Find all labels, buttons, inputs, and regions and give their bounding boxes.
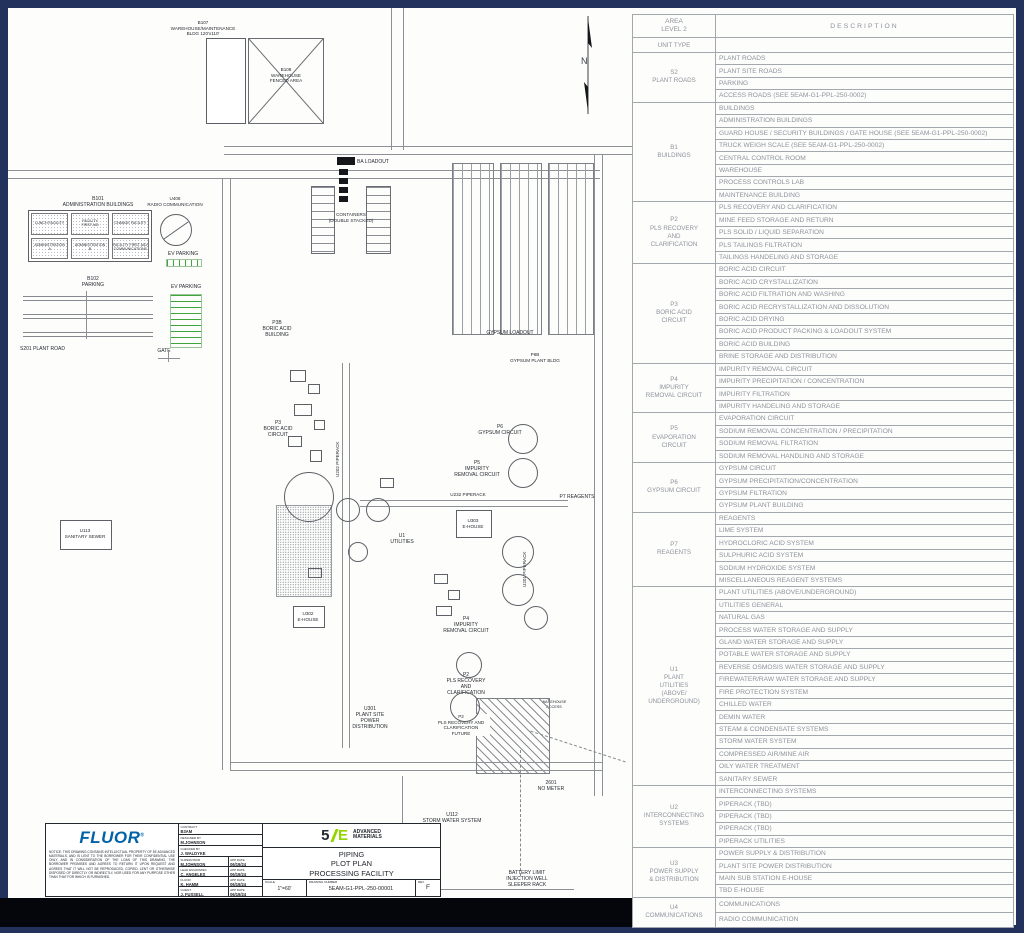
title-block-main: 5 E ADVANCED MATERIALS PIPING PLOT PLAN … (263, 824, 440, 896)
u303-label: U303 E-HOUSE (459, 518, 487, 529)
legend-row: B1 BUILDINGSBUILDINGS (633, 102, 1014, 114)
description-cell: BORIC ACID FILTRATION AND WASHING (716, 289, 1014, 301)
drawing-number-cell: DRAWING NUMBER 5EAM-G1-PPL-250-00001 (307, 880, 416, 896)
legend-row: P6 GYPSUM CIRCUITGYPSUM CIRCUIT (633, 462, 1014, 474)
b108-label: B108 WAREHOUSE FENCED AREA (257, 67, 315, 84)
description-cell: SODIUM HYDROXIDE SYSTEM (716, 562, 1014, 574)
title-block: FLUOR® NOTICE: THIS DRAWING CONTAINS INT… (45, 823, 441, 897)
logo-e: E (338, 827, 348, 844)
road-line (222, 178, 223, 770)
unit-type-cell: P7 REAGENTS (633, 512, 716, 587)
road-line (224, 154, 632, 155)
description-cell: SODIUM REMOVAL CONCENTRATION / PRECIPITA… (716, 425, 1014, 437)
u302-e-house: U302 E-HOUSE (293, 606, 325, 628)
clarifier-tank (456, 652, 482, 678)
description-cell: HYDROCLORIC ACID SYSTEM (716, 537, 1014, 549)
description-cell: IMPURITY HANDELING AND STORAGE (716, 400, 1014, 412)
legend-subheader-row: UNIT TYPE (633, 38, 1014, 53)
unit-type-cell: P2 PLS RECOVERY AND CLARIFICATION (633, 202, 716, 264)
description-cell: PIPERACK (TBD) (716, 810, 1014, 822)
description-cell: SODIUM REMOVAL FILTRATION (716, 438, 1014, 450)
description-cell: POWER SUPPLY & DISTRIBUTION (716, 848, 1014, 860)
area-level-header: AREA LEVEL 2 (633, 15, 716, 38)
unit-type-cell: U4 COMMUNICATIONS (633, 897, 716, 927)
u302-label: U302 E-HOUSE (295, 611, 321, 622)
tank (366, 498, 390, 522)
legend-row: U4 COMMUNICATIONSCOMMUNICATIONS (633, 897, 1014, 912)
unit-type-cell: U2 INTERCONNECTING SYSTEMS (633, 785, 716, 847)
legend-row: U1 PLANT UTILITIES (ABOVE/ UNDERGROUND)P… (633, 587, 1014, 599)
description-cell: UTILITIES GENERAL (716, 599, 1014, 611)
u232-piperack-label: U232 PIPERACK (438, 492, 498, 498)
approval-row: SUPERVISORM.JOHNSON APP DATE06/19/24 (179, 857, 262, 867)
equipment-block (436, 606, 452, 616)
description-cell: ADMINISTRATION BUILDINGS (716, 115, 1014, 127)
description-cell: BUILDINGS (716, 102, 1014, 114)
p2-future-area (476, 698, 550, 774)
admin-cell-firstaid: FACILITY FIRST AID (71, 213, 108, 235)
notice-text: NOTICE: THIS DRAWING CONTAINS INTELLECTU… (49, 850, 175, 879)
admin-cell-admin-a: ADMINISTRATION A (31, 238, 68, 260)
title-line-1: PIPING (263, 850, 440, 860)
description-cell: COMMUNICATIONS (716, 897, 1014, 912)
description-cell: GUARD HOUSE / SECURITY BUILDINGS / GATE … (716, 127, 1014, 139)
description-cell: GYPSUM CIRCUIT (716, 462, 1014, 474)
description-cell: TRUCK WEIGH SCALE (SEE 5EAM-G1-PPL-250-0… (716, 139, 1014, 151)
laydown-yard (500, 163, 542, 335)
equipment-block (314, 420, 325, 430)
description-cell: PIPERACK (TBD) (716, 798, 1014, 810)
description-cell: RADIO COMMUNICATION (716, 912, 1014, 927)
equipment-block (434, 574, 448, 584)
title-line-2: PLOT PLAN (263, 859, 440, 869)
description-cell: CENTRAL CONTROL ROOM (716, 152, 1014, 164)
piperack-line (360, 506, 568, 507)
description-cell: IMPURITY FILTRATION (716, 388, 1014, 400)
admin-cell-lunch: LUNCH FACILITY (31, 213, 68, 235)
equipment-block (288, 436, 302, 447)
equipment-block (290, 370, 306, 382)
ev-parking-strip-1 (166, 259, 202, 267)
unit-type-cell: U3 POWER SUPPLY & DISTRIBUTION (633, 848, 716, 898)
description-cell: WAREHOUSE (716, 164, 1014, 176)
description-cell: STORM WATER SYSTEM (716, 736, 1014, 748)
u1-utilities-label: U1 UTILITIES (384, 533, 420, 545)
description-cell: BORIC ACID PRODUCT PACKING & LOADOUT SYS… (716, 326, 1014, 338)
description-cell: BORIC ACID DRYING (716, 313, 1014, 325)
unit-type-cell: U1 PLANT UTILITIES (ABOVE/ UNDERGROUND) (633, 587, 716, 786)
gate-line (158, 358, 180, 359)
piperack-line (342, 363, 343, 748)
description-cell: REAGENTS (716, 512, 1014, 524)
u408-label: U408 RADIO COMMUNICATION (140, 196, 210, 207)
gate-post (168, 350, 169, 362)
scale-cell: SCALE 1"=60' (263, 880, 307, 896)
p4-impurity-label: P4 IMPURITY REMOVAL CIRCUIT (438, 616, 494, 634)
tank (336, 498, 360, 522)
unit-type-cell: P6 GYPSUM CIRCUIT (633, 462, 716, 512)
description-cell: PLANT SITE ROADS (716, 65, 1014, 77)
tank (508, 458, 538, 488)
tank (524, 606, 548, 630)
gypsum-loadout-label: GYPSUM LOADOUT (470, 330, 550, 336)
ba-loadout-label: BA LOADOUT (357, 159, 403, 165)
loadout-bin (339, 187, 348, 193)
description-cell: SANITARY SEWER (716, 773, 1014, 785)
description-cell: PROCESS CONTROLS LAB (716, 177, 1014, 189)
u113-sanitary-sewer: U113 SANITARY SEWER (60, 520, 112, 550)
description-cell: IMPURITY REMOVAL CIRCUIT (716, 363, 1014, 375)
description-cell: PLS RECOVERY AND CLARIFICATION (716, 202, 1014, 214)
description-cell: INTERCONNECTING SYSTEMS (716, 785, 1014, 797)
description-cell: STEAM & CONDENSATE SYSTEMS (716, 723, 1014, 735)
description-cell: SULPHURIC ACID SYSTEM (716, 549, 1014, 561)
description-cell: PLS SOLID / LIQUID SEPARATION (716, 226, 1014, 238)
description-cell: PIPERACK (TBD) (716, 823, 1014, 835)
legend-row: U2 INTERCONNECTING SYSTEMSINTERCONNECTIN… (633, 785, 1014, 797)
antenna-line (163, 221, 188, 239)
tank (508, 424, 538, 454)
title-block-bottom-row: SCALE 1"=60' DRAWING NUMBER 5EAM-G1-PPL-… (263, 879, 440, 896)
description-cell: NATURAL GAS (716, 611, 1014, 623)
description-cell: BORIC ACID RECRYSTALLIZATION AND DISSOLU… (716, 301, 1014, 313)
equipment-block (310, 450, 322, 462)
unit-type-cell: B1 BUILDINGS (633, 102, 716, 201)
description-cell: GLAND WATER STORAGE AND SUPPLY (716, 636, 1014, 648)
approval-row: FLUORK. HAMM APP DATE06/19/24 (179, 877, 262, 887)
5e-advanced-materials-logo: 5 E ADVANCED MATERIALS (263, 824, 440, 848)
battery-limit-label: BATTERY LIMIT INJECTION WELL SLEEPER RAC… (492, 870, 562, 888)
parking-aisle-line (86, 291, 87, 339)
laydown-yard (452, 163, 494, 335)
legend-row: P4 IMPURITY REMOVAL CIRCUITIMPURITY REMO… (633, 363, 1014, 375)
unit-type-cell: P5 EVAPORATION CIRCUIT (633, 413, 716, 463)
description-cell: BRINE STORAGE AND DISTRIBUTION (716, 351, 1014, 363)
b102-parking-label: B102 PARKING (68, 276, 118, 288)
ba-loadout-marker (337, 157, 355, 165)
no-meter-label: 2601 NO METER (528, 780, 574, 792)
legend-table-body: S2 PLANT ROADSPLANT ROADSPLANT SITE ROAD… (633, 53, 1014, 928)
rev-cell: REV F (416, 880, 440, 896)
legend-row: P3 BORIC ACID CIRCUITBORIC ACID CIRCUIT (633, 264, 1014, 276)
p3b-label: P3B BORIC ACID BUILDING (254, 320, 300, 338)
approval-row: LEAD ENGR/SPECC. ANGELES APP DATE06/19/2… (179, 867, 262, 877)
description-cell: PLANT SITE POWER DISTRIBUTION (716, 860, 1014, 872)
description-cell: PROCESS WATER STORAGE AND SUPPLY (716, 624, 1014, 636)
ev-parking-label-1: EV PARKING (163, 251, 203, 257)
plot-plan-area: N B107 WAREHOUSE/MAINTENANCE BLDG 120'x1… (8, 8, 632, 898)
equipment-block (448, 590, 460, 600)
description-cell: MISCELLANEOUS REAGENT SYSTEMS (716, 574, 1014, 586)
parking-row (23, 332, 153, 337)
admin-cell-change: CHANGE FACILITY (112, 213, 149, 235)
p5-impurity-label: P5 IMPURITY REMOVAL CIRCUIT (450, 460, 504, 478)
equipment-block (308, 568, 322, 578)
road-line (602, 154, 603, 796)
thickener-tank (284, 472, 334, 522)
clarifier-tank (450, 692, 480, 722)
north-label: N (581, 56, 588, 66)
pipeline-dashed (520, 750, 521, 876)
description-cell: FIREWATER/RAW WATER STORAGE AND SUPPLY (716, 674, 1014, 686)
description-cell: REVERSE OSMOSIS WATER STORAGE AND SUPPLY (716, 661, 1014, 673)
bottom-black-band (0, 898, 632, 927)
p7-reagents-label: P7 REAGENTS (552, 494, 602, 500)
legend-row: S2 PLANT ROADSPLANT ROADS (633, 53, 1014, 65)
u113-label: U113 SANITARY SEWER (63, 528, 107, 539)
tank (502, 574, 534, 606)
description-cell: FIRE PROTECTION SYSTEM (716, 686, 1014, 698)
laydown-yard (548, 163, 594, 335)
title-block-fluor-cell: FLUOR® NOTICE: THIS DRAWING CONTAINS INT… (46, 824, 179, 896)
title-line-3: PROCESSING FACILITY (263, 869, 440, 879)
tank (348, 542, 368, 562)
description-cell: SODIUM REMOVAL HANDLING AND STORAGE (716, 450, 1014, 462)
description-cell: EVAPORATION CIRCUIT (716, 413, 1014, 425)
u301-power-label: U301 PLANT SITE POWER DISTRIBUTION (344, 706, 396, 730)
description-cell: TBD E-HOUSE (716, 885, 1014, 897)
description-cell: BORIC ACID BUILDING (716, 338, 1014, 350)
description-cell: POTABLE WATER STORAGE AND SUPPLY (716, 649, 1014, 661)
ev-parking-strip-2 (170, 294, 202, 348)
description-cell: PLANT UTILITIES (ABOVE/UNDERGROUND) (716, 587, 1014, 599)
description-cell: TAILINGS HANDELING AND STORAGE (716, 251, 1014, 263)
legend-row: P5 EVAPORATION CIRCUITEVAPORATION CIRCUI… (633, 413, 1014, 425)
unit-type-header: UNIT TYPE (633, 38, 716, 53)
description-cell: ACCESS ROADS (SEE 5EAM-G1-PPL-250-0002) (716, 90, 1014, 102)
description-cell: BORIC ACID CIRCUIT (716, 264, 1014, 276)
description-cell: BORIC ACID CRYSTALLIZATION (716, 276, 1014, 288)
u202-piperack-label: U202 PIPERACK (335, 428, 341, 490)
u303-e-house: U303 E-HOUSE (456, 510, 492, 538)
unit-type-cell: P4 IMPURITY REMOVAL CIRCUIT (633, 363, 716, 413)
designed-row: DESIGNED BY M.JOHNSON (179, 835, 262, 846)
description-cell: PLANT ROADS (716, 53, 1014, 65)
unit-type-cell: S2 PLANT ROADS (633, 53, 716, 103)
admin-cell-admin-b: ADMINISTRATION B (71, 238, 108, 260)
description-cell: PIPERACK UTILITIES (716, 835, 1014, 847)
description-cell: CHILLED WATER (716, 698, 1014, 710)
s201-plant-road-label: S201 PLANT ROAD (20, 346, 90, 352)
road-line (224, 146, 632, 147)
b107-warehouse-building (206, 38, 246, 124)
logo-5: 5 (321, 827, 329, 844)
u408-radio-tower (160, 214, 192, 246)
b108-fenced-area: B108 WAREHOUSE FENCED AREA (248, 38, 324, 124)
empty-header-cell (716, 38, 1014, 53)
equipment-block (380, 478, 394, 488)
tank (502, 536, 534, 568)
title-block-signoff: CONTRACT B3AM DESIGNED BY M.JOHNSON CHEC… (179, 824, 263, 896)
description-cell: PARKING (716, 77, 1014, 89)
legend-row: P7 REAGENTSREAGENTS (633, 512, 1014, 524)
road-line (594, 154, 595, 796)
description-cell: LIME SYSTEM (716, 525, 1014, 537)
description-cell: GYPSUM PLANT BUILDING (716, 500, 1014, 512)
p6b-gypsum-plant-label: P6B GYPSUM PLANT BLDG (500, 352, 570, 363)
description-cell: COMPRESSED AIR/MINE AIR (716, 748, 1014, 760)
road-line (403, 8, 404, 150)
legend-header-row: AREA LEVEL 2 DESCRIPTION (633, 15, 1014, 38)
description-cell: PLS TAILINGS FILTRATION (716, 239, 1014, 251)
legend-row: P2 PLS RECOVERY AND CLARIFICATIONPLS REC… (633, 202, 1014, 214)
engineering-drawing-viewer: { "plot": { "north": "N", "labels": { "b… (0, 0, 1024, 933)
gate-label: GATE (151, 348, 177, 354)
parking-row (23, 314, 153, 319)
legend-row: U3 POWER SUPPLY & DISTRIBUTIONPOWER SUPP… (633, 848, 1014, 860)
loadout-bin (339, 178, 348, 184)
equipment-block (308, 384, 320, 394)
description-cell: GYPSUM PRECIPITATION/CONCENTRATION (716, 475, 1014, 487)
road-line (391, 8, 392, 150)
registered-mark: ® (140, 832, 144, 838)
ev-parking-label-2: EV PARKING (166, 284, 206, 290)
description-cell: GYPSUM FILTRATION (716, 487, 1014, 499)
description-cell: IMPURITY PRECIPITATION / CONCENTRATION (716, 375, 1014, 387)
loadout-bin (339, 169, 348, 175)
fluor-logo: FLUOR® (49, 828, 175, 848)
description-cell: OILY WATER TREATMENT (716, 761, 1014, 773)
road-line (230, 178, 231, 770)
piperack-line (360, 500, 568, 501)
description-cell: MINE FEED STORAGE AND RETURN (716, 214, 1014, 226)
equipment-block (294, 404, 312, 416)
brand-text: ADVANCED MATERIALS (353, 830, 382, 842)
description-cell: MAIN SUB STATION E-HOUSE (716, 872, 1014, 884)
description-header: DESCRIPTION (716, 15, 1014, 38)
description-cell: DEMIN WATER (716, 711, 1014, 723)
b101-administration-buildings: LUNCH FACILITY FACILITY FIRST AID CHANGE… (28, 210, 152, 262)
contract-row: CONTRACT B3AM (179, 824, 262, 835)
area-legend-table: AREA LEVEL 2 DESCRIPTION UNIT TYPE S2 PL… (632, 14, 1014, 928)
unit-type-cell: P3 BORIC ACID CIRCUIT (633, 264, 716, 363)
description-cell: MAINTENANCE BUILDING (716, 189, 1014, 201)
logo-slash-icon (330, 829, 338, 842)
loadout-bin (339, 196, 348, 202)
drawing-title: PIPING PLOT PLAN PROCESSING FACILITY (263, 848, 440, 879)
admin-cell-comms: FACILITY FIRST AID/ COMMUNICATIONS (112, 238, 149, 260)
containers-label: CONTAINERS (DOUBLE STACKED) (325, 212, 377, 223)
parking-row (23, 296, 153, 301)
approval-row: CLIENTJ. FUSSELL APP DATE06/19/24 (179, 887, 262, 896)
legend-table: AREA LEVEL 2 DESCRIPTION UNIT TYPE S2 PL… (632, 14, 1014, 928)
checked-row: CHECKED BY J. WALDYKE (179, 846, 262, 857)
b107-label: B107 WAREHOUSE/MAINTENANCE BLDG 120'x110… (148, 20, 258, 37)
